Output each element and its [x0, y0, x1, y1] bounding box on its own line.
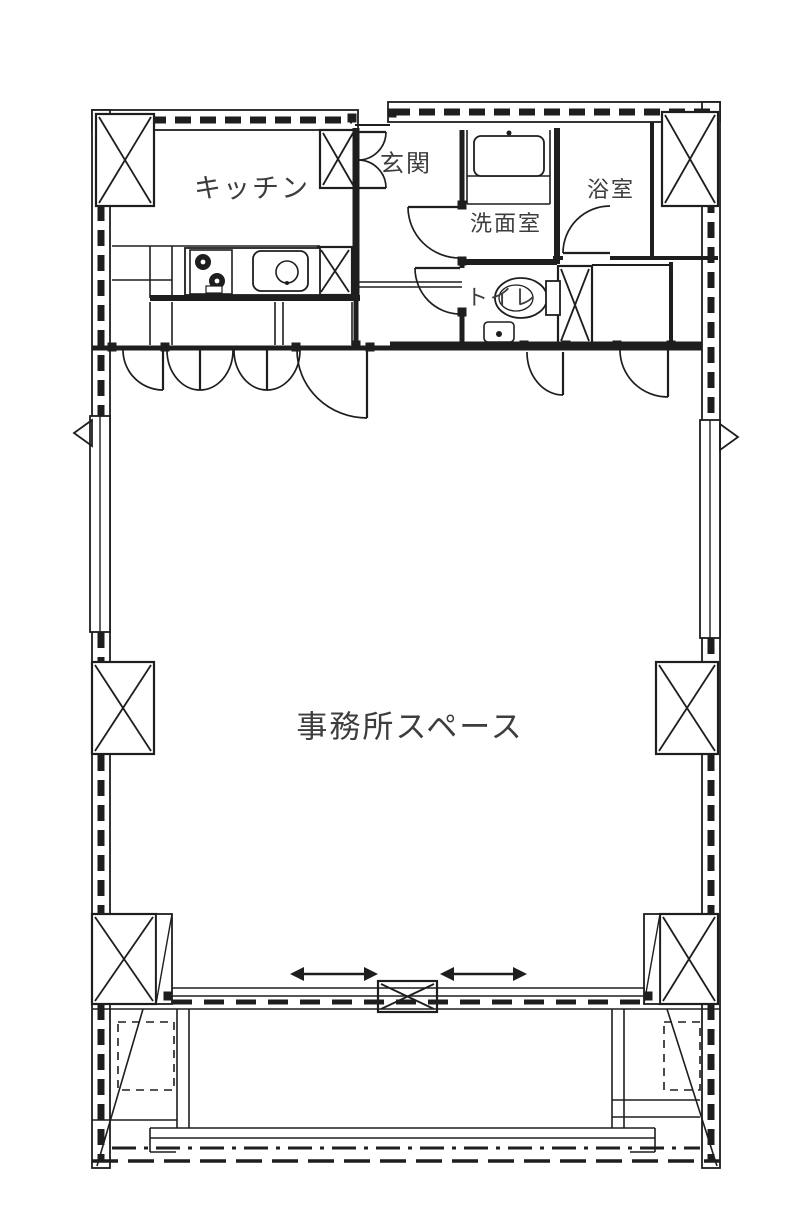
room-label-kitchen: キッチン	[194, 167, 310, 206]
slide-arrows	[290, 967, 527, 981]
room-label-toilet: トイレ	[466, 280, 538, 312]
room-label-bathroom: 浴室	[587, 172, 635, 204]
side-windows	[74, 416, 738, 638]
room-label-office: 事務所スペース	[296, 702, 523, 747]
floor-plan-drawing	[0, 0, 807, 1210]
room-label-entrance: 玄関	[380, 144, 432, 179]
jamb-marks	[108, 109, 676, 1001]
floor-plan-page: キッチン 玄関 洗面室 浴室 トイレ 事務所スペース	[0, 0, 807, 1210]
columns	[92, 112, 718, 1012]
room-label-washroom: 洗面室	[470, 206, 542, 238]
